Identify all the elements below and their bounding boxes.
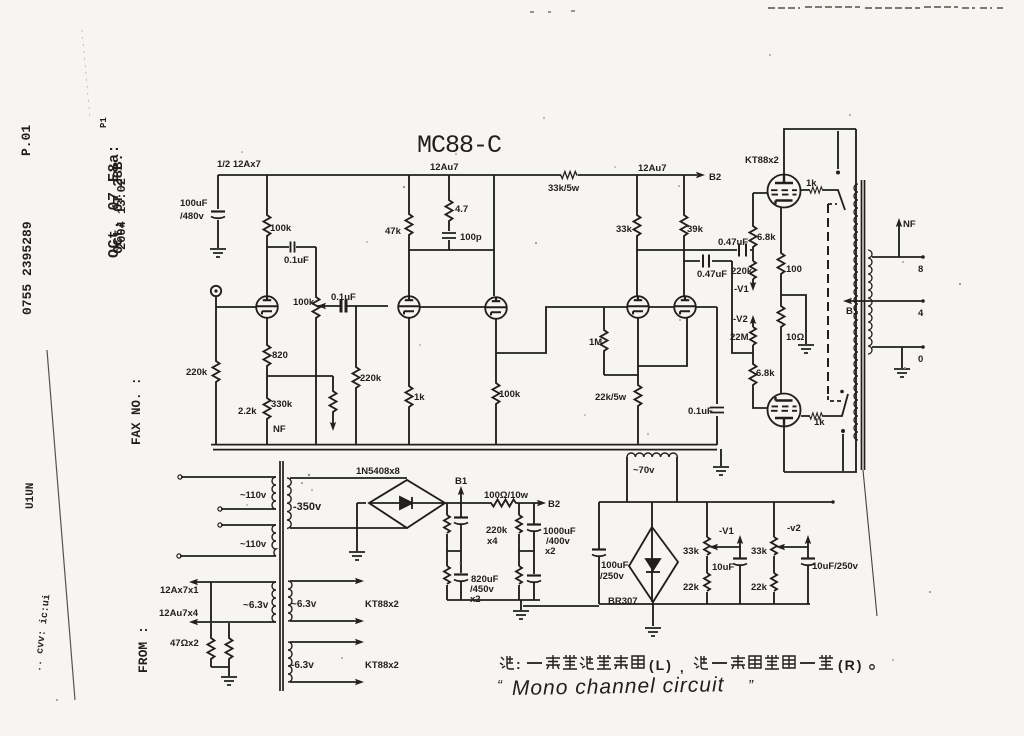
svg-text:-v2: -v2 (787, 523, 801, 534)
svg-text:12Au7x4: 12Au7x4 (159, 608, 199, 619)
svg-text:1M: 1M (589, 337, 602, 348)
svg-text:”: ” (748, 677, 754, 694)
svg-text:(R): (R) (838, 657, 863, 673)
svg-text:4: 4 (918, 308, 924, 319)
svg-text:8: 8 (918, 264, 923, 275)
svg-text:33k: 33k (683, 546, 700, 557)
svg-text:0.47uF: 0.47uF (718, 237, 748, 248)
svg-text:~6.3v: ~6.3v (243, 600, 269, 611)
svg-text:~70v: ~70v (633, 465, 655, 476)
svg-text:,: , (680, 660, 684, 675)
svg-text:10Ω: 10Ω (786, 332, 805, 343)
svg-text:12Au7: 12Au7 (638, 163, 667, 174)
svg-text:1k: 1k (814, 417, 825, 428)
svg-text:39k: 39k (687, 224, 704, 235)
svg-text:33k: 33k (751, 546, 768, 557)
svg-text:“: “ (497, 677, 503, 694)
svg-text:(L): (L) (649, 657, 673, 673)
svg-text:-6.3v: -6.3v (291, 660, 314, 671)
svg-text::: : (516, 656, 521, 672)
svg-text:22M: 22M (730, 332, 749, 343)
svg-text:Mono channel circuit: Mono channel circuit (512, 673, 725, 700)
svg-text:KT88x2: KT88x2 (365, 660, 399, 671)
svg-text:47Ωx2: 47Ωx2 (170, 638, 199, 649)
svg-text:BR307: BR307 (608, 596, 638, 607)
svg-text:B1: B1 (846, 306, 859, 317)
svg-text:P.01: P.01 (19, 125, 34, 156)
svg-text:0.1uF: 0.1uF (284, 255, 309, 266)
svg-text:B2: B2 (709, 172, 721, 183)
svg-text:0.1uF: 0.1uF (688, 406, 713, 417)
svg-text:FAX NO. :: FAX NO. : (130, 377, 144, 445)
svg-text:220k: 220k (731, 266, 753, 277)
svg-text:~6.3v: ~6.3v (291, 599, 317, 610)
svg-text:1k: 1k (414, 392, 425, 403)
svg-text:100k: 100k (270, 223, 292, 234)
svg-text:0755 2395289: 0755 2395289 (20, 221, 35, 315)
svg-text:/250v: /250v (600, 571, 624, 582)
svg-text:KT88x2: KT88x2 (365, 599, 399, 610)
svg-text:47k: 47k (385, 226, 402, 237)
svg-text:10uF: 10uF (712, 562, 734, 573)
svg-text:x2: x2 (545, 546, 556, 557)
svg-text:NF: NF (273, 424, 286, 435)
svg-text:-V2: -V2 (733, 314, 748, 325)
svg-text:0Ct, 0T 28B.: 0Ct, 0T 28B. (111, 153, 127, 254)
svg-text:FROM :: FROM : (136, 626, 151, 673)
svg-text:12Ax7x1: 12Ax7x1 (160, 585, 199, 596)
svg-text:0.1uF: 0.1uF (331, 292, 356, 303)
svg-text:100: 100 (786, 264, 802, 275)
svg-text:6.8k: 6.8k (757, 232, 776, 243)
svg-text:KT88x2: KT88x2 (745, 155, 779, 166)
svg-text:4.7: 4.7 (455, 204, 468, 215)
svg-text:220k: 220k (360, 373, 382, 384)
svg-text:.. cvv: ic:ui: .. cvv: ic:ui (32, 594, 53, 673)
svg-text:x4: x4 (487, 536, 498, 547)
svg-text:100k: 100k (499, 389, 521, 400)
svg-text:100uF: 100uF (180, 198, 208, 209)
svg-text:2.2k: 2.2k (238, 406, 257, 417)
svg-text:22k/5w: 22k/5w (595, 392, 627, 403)
svg-text:1N5408x8: 1N5408x8 (356, 466, 400, 477)
svg-text:100p: 100p (460, 232, 482, 243)
svg-text:1k: 1k (806, 178, 817, 189)
svg-text:-V1: -V1 (734, 284, 750, 295)
svg-text:~110v: ~110v (240, 490, 267, 501)
svg-text:B1: B1 (455, 476, 468, 487)
svg-text:100k: 100k (293, 297, 315, 308)
svg-text:220k: 220k (486, 525, 508, 536)
svg-text:/480v: /480v (180, 211, 204, 222)
svg-text:U1UN: U1UN (25, 483, 37, 509)
svg-text:-V1: -V1 (719, 526, 735, 537)
svg-text:-350v: -350v (293, 501, 322, 513)
svg-text:330k: 330k (271, 399, 293, 410)
svg-text:10uF/250v: 10uF/250v (812, 561, 859, 572)
svg-text:33k/5w: 33k/5w (548, 183, 580, 194)
svg-text:12Au7: 12Au7 (430, 162, 459, 173)
svg-text:0.47uF: 0.47uF (697, 269, 727, 280)
svg-text:100uF: 100uF (601, 560, 629, 571)
svg-text:NF: NF (903, 219, 916, 230)
svg-text:MC88-C: MC88-C (417, 131, 501, 160)
svg-text:6.8k: 6.8k (756, 368, 775, 379)
svg-text:0: 0 (918, 354, 923, 365)
svg-text:820: 820 (272, 350, 288, 361)
svg-text:100Ω/10w: 100Ω/10w (484, 490, 529, 501)
svg-text:33k: 33k (616, 224, 633, 235)
svg-text:B2: B2 (548, 499, 560, 510)
svg-text:~110v: ~110v (240, 539, 267, 550)
svg-text:P1: P1 (99, 117, 109, 128)
svg-text:1/2 12Ax7: 1/2 12Ax7 (217, 159, 261, 170)
svg-text:220k: 220k (186, 367, 208, 378)
svg-text:22k: 22k (751, 582, 768, 593)
svg-text:22k: 22k (683, 582, 700, 593)
